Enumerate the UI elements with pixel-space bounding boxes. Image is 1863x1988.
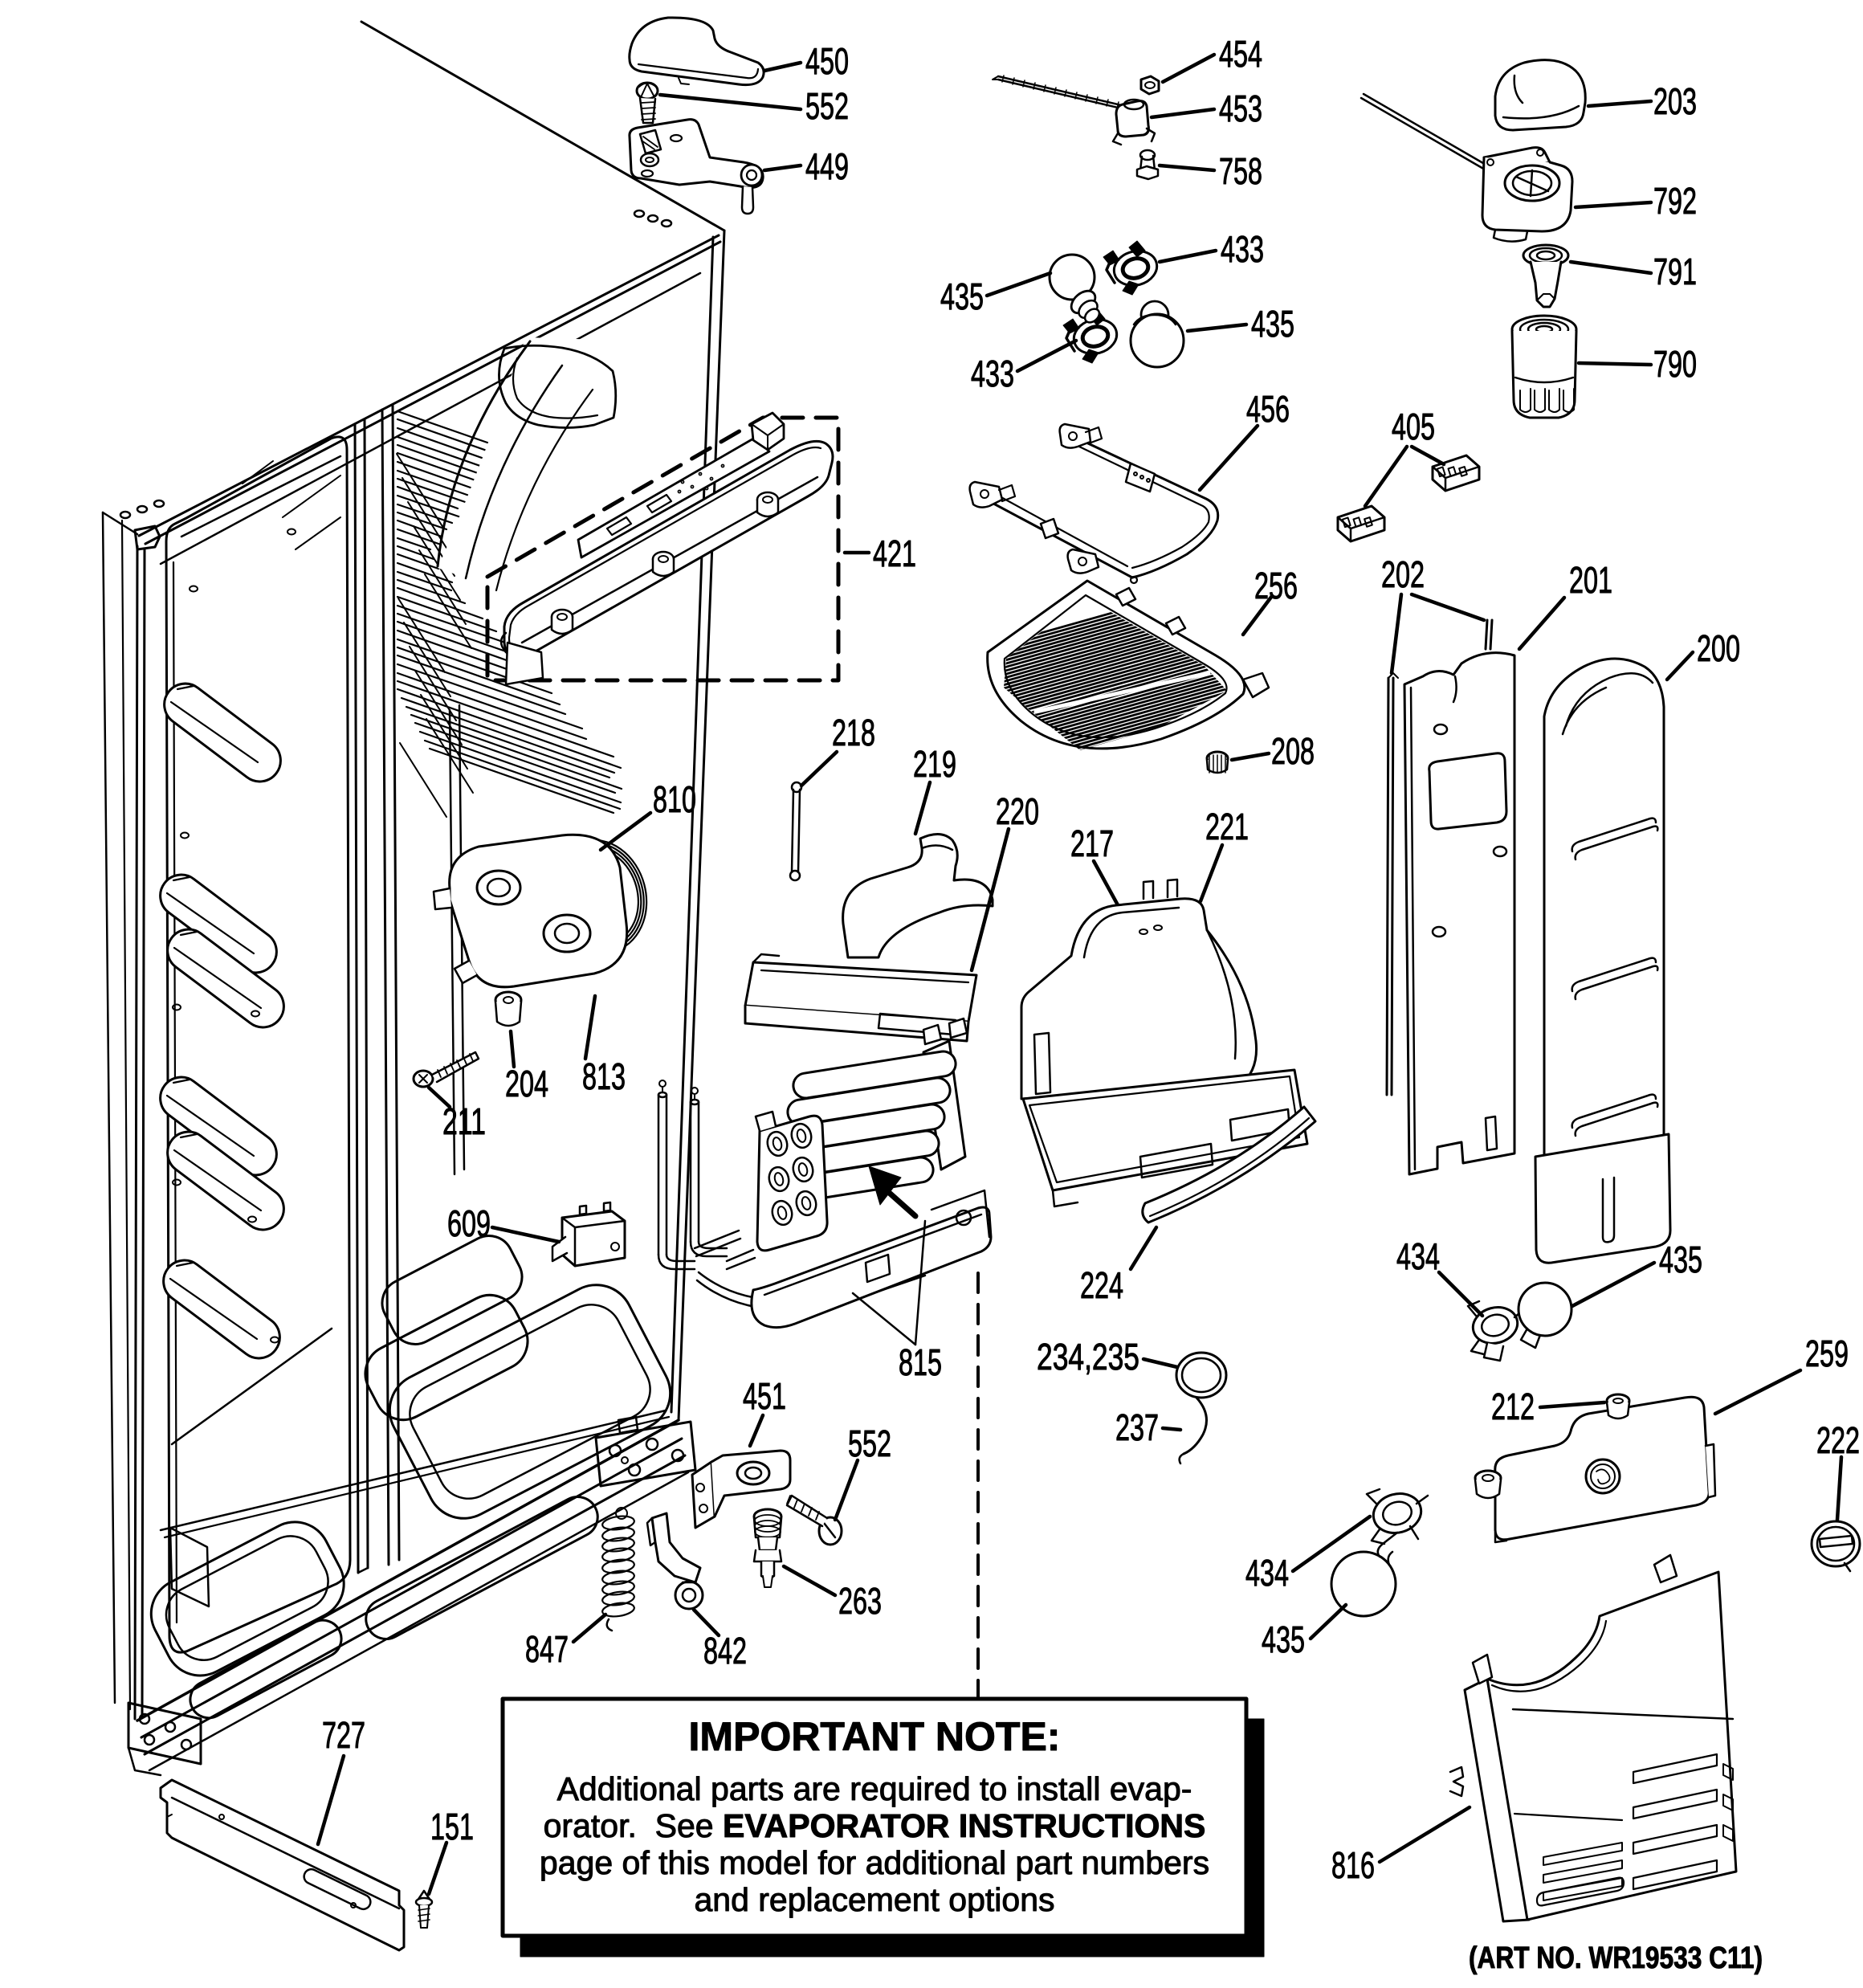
svg-text:201: 201: [1569, 559, 1612, 601]
svg-text:791: 791: [1653, 251, 1697, 292]
svg-text:217: 217: [1070, 823, 1114, 864]
svg-text:405: 405: [1392, 406, 1435, 447]
svg-text:758: 758: [1219, 150, 1262, 192]
svg-text:451: 451: [743, 1375, 786, 1417]
svg-text:221: 221: [1205, 806, 1249, 847]
svg-text:435: 435: [940, 276, 984, 317]
svg-text:224: 224: [1080, 1264, 1123, 1306]
svg-text:200: 200: [1697, 627, 1740, 669]
svg-text:609: 609: [447, 1202, 491, 1244]
svg-text:421: 421: [873, 533, 916, 574]
svg-text:208: 208: [1271, 730, 1315, 772]
svg-text:449: 449: [805, 145, 849, 187]
svg-text:456: 456: [1246, 388, 1290, 430]
svg-text:792: 792: [1653, 180, 1697, 222]
svg-text:552: 552: [848, 1423, 891, 1464]
svg-text:151: 151: [430, 1806, 474, 1847]
svg-text:237: 237: [1115, 1406, 1159, 1448]
svg-text:202: 202: [1381, 553, 1425, 595]
svg-text:259: 259: [1805, 1333, 1849, 1374]
svg-text:813: 813: [582, 1055, 626, 1097]
svg-text:220: 220: [996, 790, 1039, 832]
svg-text:234,235: 234,235: [1037, 1336, 1139, 1378]
svg-text:435: 435: [1251, 303, 1294, 345]
svg-text:219: 219: [913, 743, 956, 785]
svg-text:435: 435: [1262, 1619, 1305, 1660]
svg-text:450: 450: [805, 40, 849, 82]
svg-text:Additional parts are required: Additional parts are required to install…: [557, 1770, 1192, 1807]
svg-text:211: 211: [442, 1100, 486, 1142]
svg-text:810: 810: [653, 778, 696, 820]
svg-text:453: 453: [1219, 88, 1262, 129]
svg-text:212: 212: [1491, 1386, 1535, 1427]
svg-text:435: 435: [1659, 1239, 1702, 1280]
svg-text:454: 454: [1219, 33, 1262, 75]
svg-text:203: 203: [1653, 80, 1697, 122]
svg-text:263: 263: [838, 1580, 882, 1622]
svg-text:842: 842: [703, 1630, 747, 1672]
svg-text:218: 218: [832, 712, 875, 753]
svg-text:433: 433: [971, 353, 1014, 394]
svg-text:815: 815: [899, 1341, 942, 1383]
svg-text:433: 433: [1221, 228, 1264, 270]
svg-text:page of this model for additio: page of this model for additional part n…: [540, 1844, 1209, 1881]
svg-text:and replacement options: and replacement options: [694, 1881, 1054, 1918]
svg-text:790: 790: [1653, 343, 1697, 385]
svg-text:552: 552: [805, 85, 849, 127]
svg-text:(ART NO. WR19533 C11): (ART NO. WR19533 C11): [1469, 1941, 1763, 1975]
svg-text:434: 434: [1245, 1552, 1289, 1594]
svg-text:256: 256: [1254, 565, 1298, 606]
svg-text:IMPORTANT NOTE:: IMPORTANT NOTE:: [689, 1714, 1061, 1759]
svg-text:847: 847: [525, 1628, 569, 1670]
svg-text:434: 434: [1396, 1235, 1440, 1277]
svg-text:816: 816: [1331, 1844, 1375, 1886]
svg-text:222: 222: [1816, 1419, 1860, 1461]
svg-text:orator. See EVAPORATOR INSTRU: orator. See EVAPORATOR INSTRUCTIONS: [544, 1807, 1206, 1844]
svg-text:204: 204: [505, 1063, 548, 1104]
svg-text:727: 727: [322, 1714, 365, 1756]
